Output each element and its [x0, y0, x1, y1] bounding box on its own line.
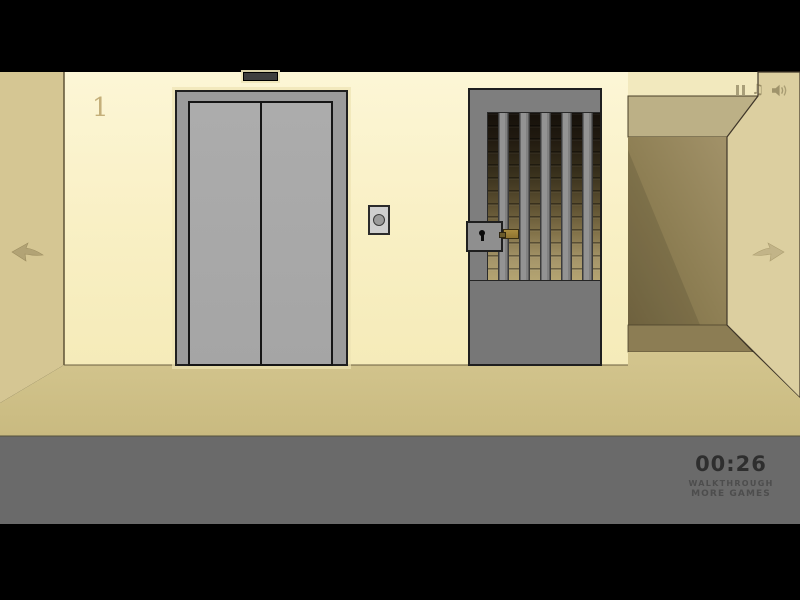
walkthrough-link[interactable]: WALKTHROUGH — [666, 479, 796, 488]
gate-lock[interactable] — [466, 221, 503, 252]
hud: 00:26 WALKTHROUGH MORE GAMES — [666, 453, 796, 499]
speaker-icon[interactable] — [771, 84, 788, 97]
left-side-wall — [0, 72, 64, 403]
elevator-indicator — [243, 72, 278, 81]
gate-top-rail — [470, 90, 600, 113]
music-icon[interactable]: ♫ — [752, 83, 765, 97]
elevator-door-left[interactable] — [190, 103, 261, 364]
gate-bottom-panel — [470, 280, 600, 364]
elevator-call-button-icon[interactable] — [373, 214, 385, 226]
more-games-link[interactable]: MORE GAMES — [666, 489, 796, 499]
stairs-behind-gate — [488, 112, 600, 281]
arrow-right-icon[interactable] — [750, 240, 788, 266]
elevator-door-split — [260, 103, 262, 364]
sound-controls: ♫ — [736, 82, 788, 98]
room-scene — [0, 0, 800, 600]
pause-icon[interactable] — [736, 85, 745, 95]
gate-left-stile — [470, 112, 488, 281]
elevator-door-right[interactable] — [261, 103, 332, 364]
arrow-left-icon[interactable] — [8, 240, 46, 266]
barred-gate[interactable] — [468, 88, 602, 366]
elevator-doors[interactable] — [188, 101, 333, 366]
timer: 00:26 — [666, 453, 796, 476]
gate-latch-pin — [499, 232, 506, 238]
keyhole-stem — [481, 234, 484, 241]
game-stage: 1 ♫ — [0, 0, 800, 600]
elevator-call-panel[interactable] — [368, 205, 390, 235]
gate-latch[interactable] — [503, 229, 519, 239]
gate-bars[interactable] — [488, 112, 600, 281]
floor-number: 1 — [92, 95, 109, 121]
